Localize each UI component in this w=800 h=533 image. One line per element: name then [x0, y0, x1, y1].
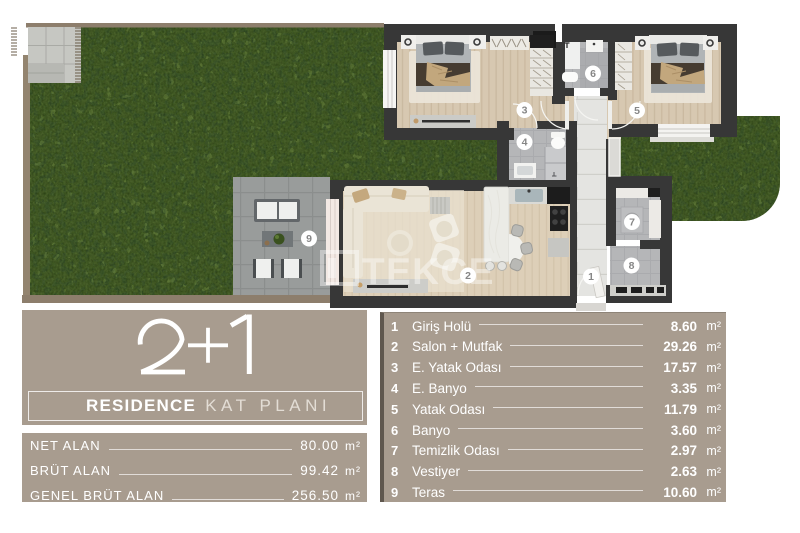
svg-text:1: 1 — [588, 271, 594, 283]
svg-text:3: 3 — [522, 105, 528, 117]
svg-text:9: 9 — [306, 233, 312, 245]
svg-text:2: 2 — [465, 270, 471, 282]
svg-text:TEKCE: TEKCE — [362, 251, 495, 292]
svg-text:8: 8 — [629, 260, 635, 272]
svg-text:5: 5 — [634, 105, 640, 117]
svg-text:4: 4 — [522, 137, 528, 149]
svg-text:6: 6 — [590, 68, 596, 80]
svg-text:7: 7 — [629, 217, 635, 229]
